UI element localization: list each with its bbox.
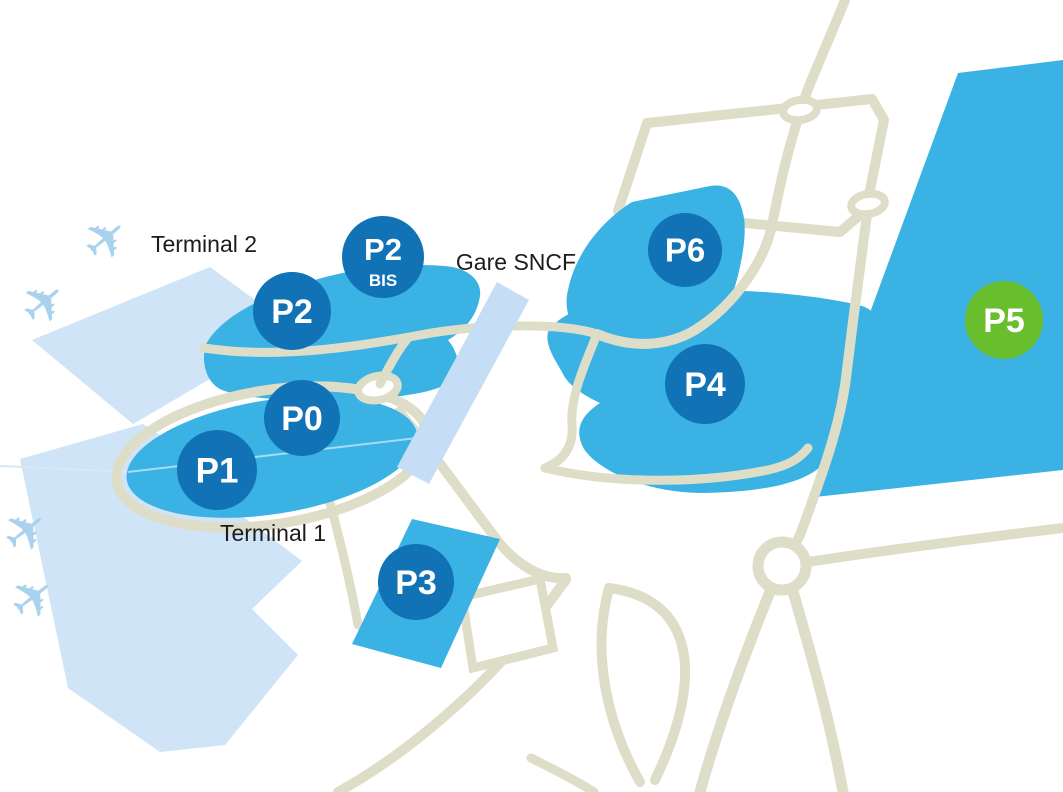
badge-text: P2 (271, 293, 313, 331)
terminal2-label: Terminal 2 (151, 231, 257, 257)
parking-badge-p2[interactable]: P2 (253, 272, 331, 350)
badge-text: P5 (983, 302, 1025, 340)
road-vertical-left (700, 572, 778, 792)
badge-text: P0 (281, 400, 323, 438)
road-square-loop (462, 579, 553, 668)
airplane-icon: ✈ (70, 202, 143, 277)
badge-text: P6 (665, 232, 705, 269)
road-east (782, 528, 1063, 566)
parking-badge-p1[interactable]: P1 (177, 430, 257, 510)
road-teardrop-west (602, 588, 640, 782)
airport-parking-map: ✈ ✈ ✈ ✈ P2 P2 BIS P0 P1 P3 P4 P6 P5 Term… (0, 0, 1063, 792)
badge-text: P4 (684, 366, 726, 404)
terminal1-label: Terminal 1 (220, 520, 326, 546)
parking-badge-p0[interactable]: P0 (264, 380, 340, 456)
parking-area-p5[interactable] (815, 60, 1063, 497)
road-corner-south (531, 758, 594, 792)
badge-text: P3 (395, 564, 437, 602)
parking-badge-p5[interactable]: P5 (965, 281, 1043, 359)
badge-subtext: BIS (369, 271, 397, 290)
parking-badge-p6[interactable]: P6 (648, 213, 722, 287)
badge-text: P1 (196, 451, 239, 490)
parking-badge-p2bis[interactable]: P2 BIS (342, 216, 424, 298)
parking-badge-p4[interactable]: P4 (665, 344, 745, 424)
roundabout-main (758, 542, 806, 590)
roundabout-north-1 (782, 98, 818, 123)
roundabout-north-2 (850, 191, 887, 217)
badge-text: P2 (364, 232, 402, 267)
station-label: Gare SNCF (456, 249, 576, 275)
road-vertical-right (788, 574, 843, 792)
parking-badge-p3[interactable]: P3 (378, 544, 454, 620)
road-ring-stub (330, 503, 358, 625)
